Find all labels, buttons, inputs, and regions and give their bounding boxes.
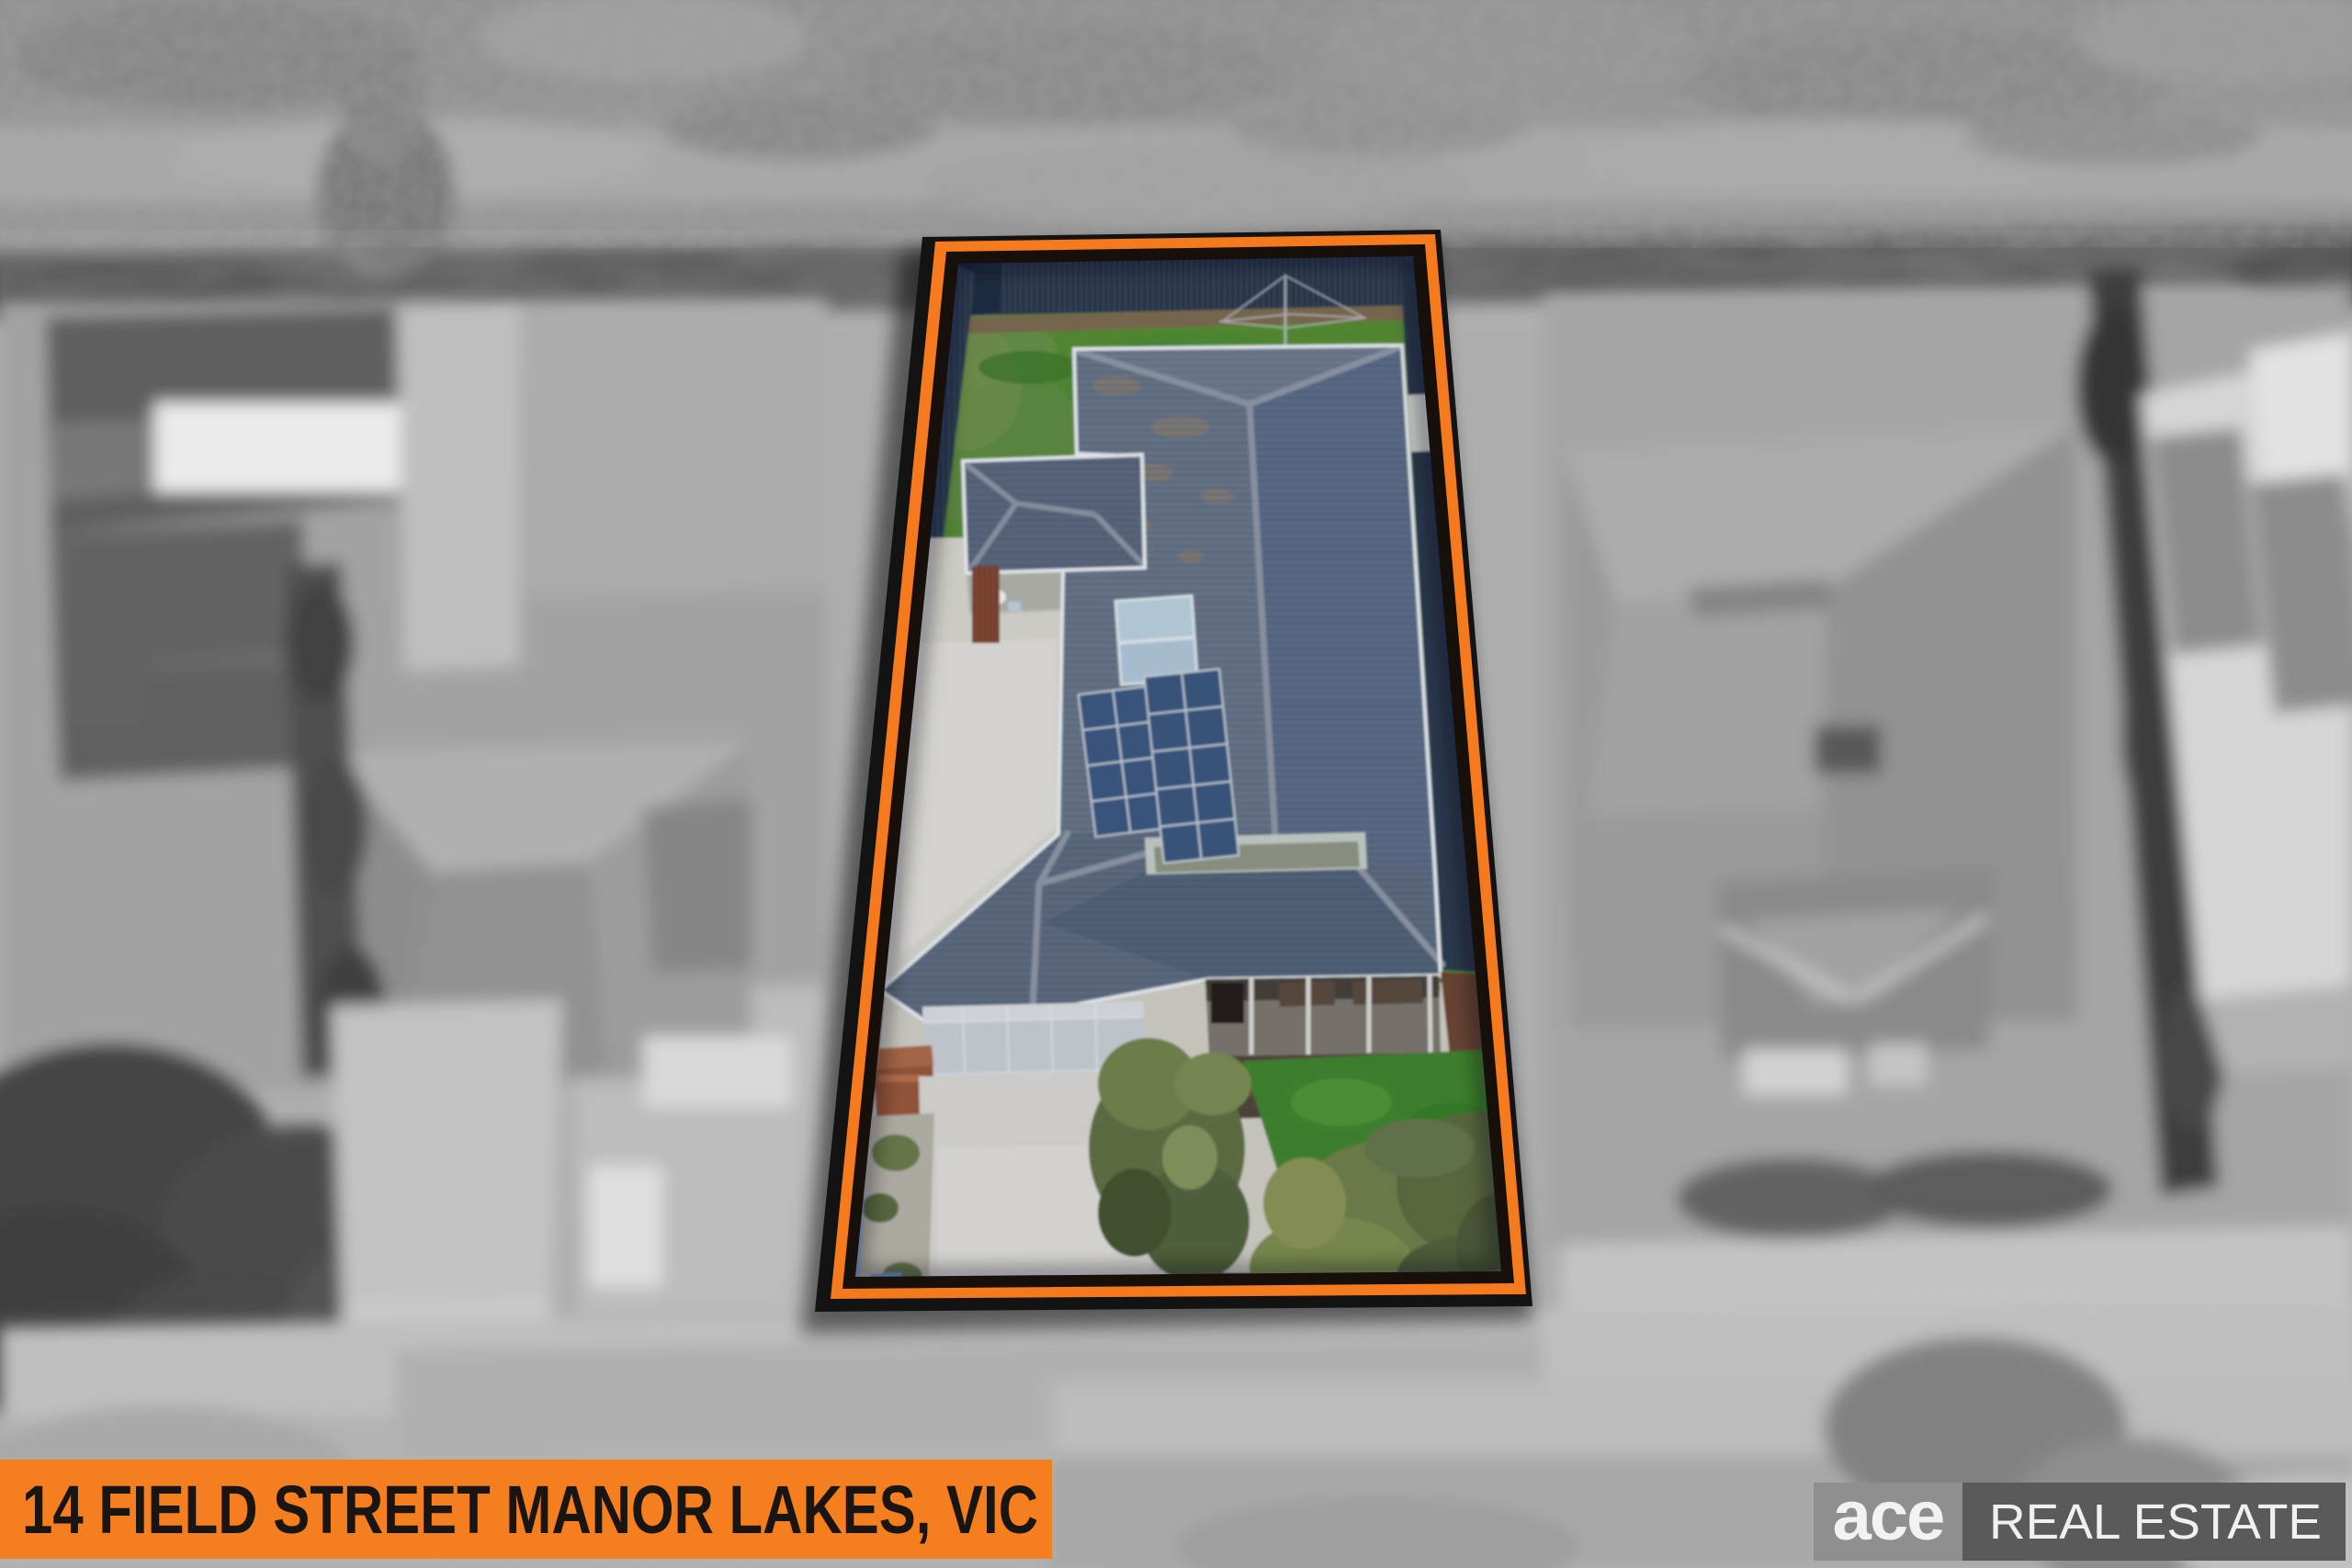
svg-text:14 FIELD STREET MANOR LAKES, V: 14 FIELD STREET MANOR LAKES, VIC <box>22 1472 1038 1548</box>
svg-text:REAL ESTATE: REAL ESTATE <box>1989 1495 2322 1550</box>
svg-text:ace: ace <box>1833 1477 1944 1555</box>
